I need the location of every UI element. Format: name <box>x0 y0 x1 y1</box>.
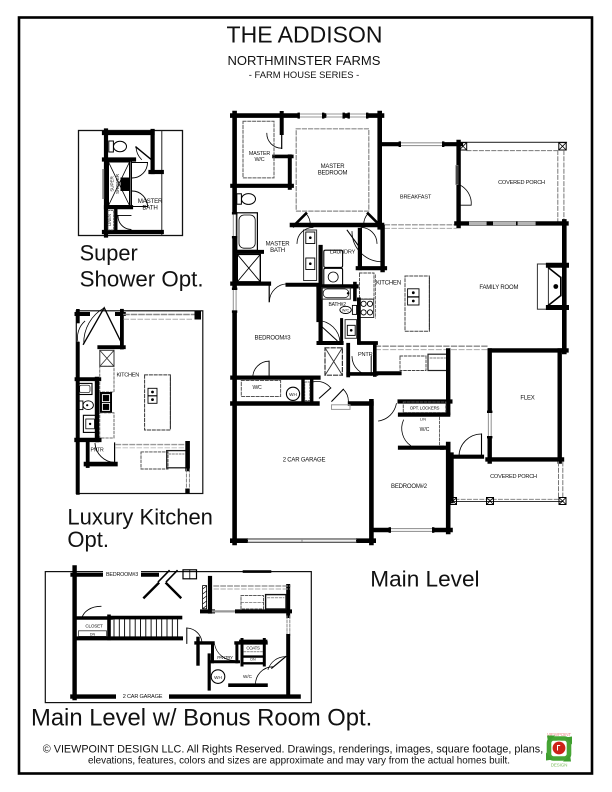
svg-text:elevations, features, colors a: elevations, features, colors and sizes a… <box>88 756 510 767</box>
svg-text:COVERED PORCH: COVERED PORCH <box>490 474 537 480</box>
svg-text:DN: DN <box>250 657 256 661</box>
svg-text:Main Level: Main Level <box>370 566 479 591</box>
svg-text:W/C: W/C <box>420 427 430 433</box>
svg-text:DN: DN <box>90 632 96 636</box>
svg-text:MASTER: MASTER <box>266 242 291 248</box>
svg-text:FAMILY ROOM: FAMILY ROOM <box>479 285 518 291</box>
svg-text:CLOSET: CLOSET <box>85 623 103 628</box>
svg-text:Luxury Kitchen: Luxury Kitchen <box>67 505 213 530</box>
svg-text:SHOWER: SHOWER <box>115 173 120 194</box>
svg-text:BREAKFAST: BREAKFAST <box>400 195 432 201</box>
svg-text:SUPER: SUPER <box>110 176 115 192</box>
svg-text:WH: WH <box>289 392 297 397</box>
svg-text:BEDROOM#3: BEDROOM#3 <box>106 572 138 578</box>
svg-text:BEDROOM: BEDROOM <box>318 171 348 177</box>
svg-text:2 CAR GARAGE: 2 CAR GARAGE <box>123 694 163 700</box>
svg-text:Shower Opt.: Shower Opt. <box>80 266 204 291</box>
svg-text:OPT. LOCKERS: OPT. LOCKERS <box>410 405 440 410</box>
svg-text:LIN: LIN <box>420 417 426 421</box>
svg-text:BATH#2: BATH#2 <box>329 302 347 308</box>
svg-text:2 CAR GARAGE: 2 CAR GARAGE <box>283 458 326 464</box>
svg-text:COATS: COATS <box>246 645 260 650</box>
svg-text:W/C: W/C <box>243 674 253 679</box>
svg-text:COVERED PORCH: COVERED PORCH <box>498 180 545 186</box>
svg-text:PNTR: PNTR <box>358 352 373 358</box>
svg-text:BATH: BATH <box>142 205 157 212</box>
svg-text:- FARM HOUSE SERIES -: - FARM HOUSE SERIES - <box>249 69 359 80</box>
svg-text:LAUNDRY: LAUNDRY <box>330 250 356 256</box>
svg-text:NORTHMINSTER FARMS: NORTHMINSTER FARMS <box>228 53 381 68</box>
svg-text:BEDROOM#2: BEDROOM#2 <box>391 484 428 490</box>
svg-text:BATH: BATH <box>270 248 285 254</box>
svg-text:© VIEWPOINT DESIGN LLC. All Ri: © VIEWPOINT DESIGN LLC. All Rights Reser… <box>43 744 543 756</box>
svg-text:BEDROOM#3: BEDROOM#3 <box>255 336 292 342</box>
svg-text:Opt.: Opt. <box>67 527 109 552</box>
svg-text:Main Level w/ Bonus Room Opt.: Main Level w/ Bonus Room Opt. <box>31 705 372 732</box>
svg-text:W/C: W/C <box>252 385 262 391</box>
svg-text:KITCHEN: KITCHEN <box>117 373 140 379</box>
svg-text:WH: WH <box>214 675 222 680</box>
svg-text:W/C: W/C <box>255 157 265 163</box>
svg-text:DESIGN: DESIGN <box>551 763 567 768</box>
svg-text:THE ADDISON: THE ADDISON <box>227 21 383 47</box>
svg-text:Super: Super <box>80 241 138 266</box>
svg-text:FLEX: FLEX <box>520 396 534 402</box>
svg-text:MASTER: MASTER <box>321 164 346 170</box>
svg-text:KITCHEN: KITCHEN <box>376 281 401 287</box>
svg-text:W/C: W/C <box>342 309 350 313</box>
svg-text:PNTR: PNTR <box>91 448 104 454</box>
svg-text:PANTRY: PANTRY <box>217 655 233 660</box>
